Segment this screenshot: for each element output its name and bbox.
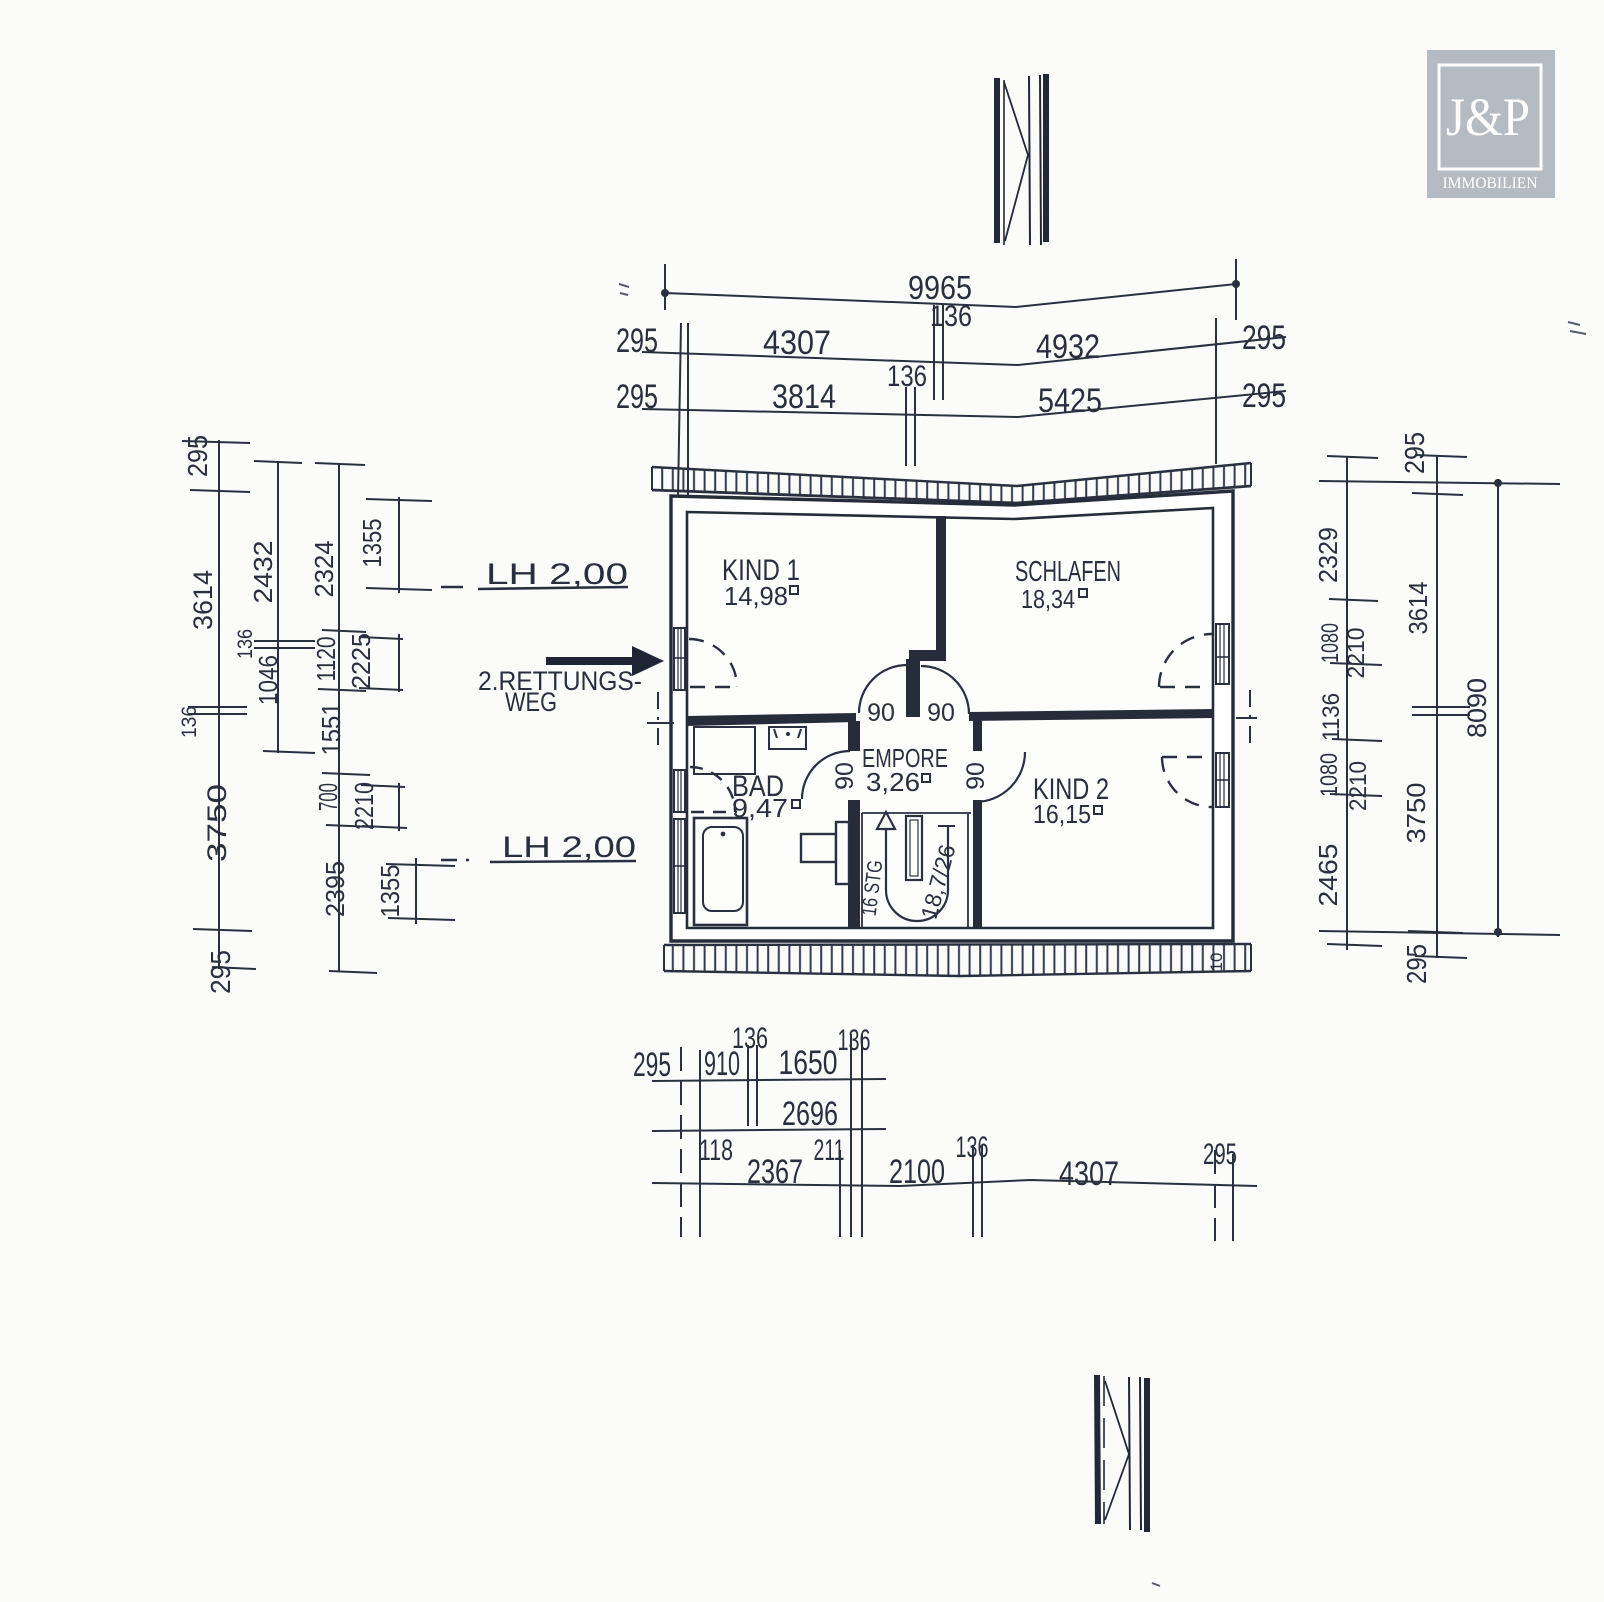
svg-text:2225: 2225 bbox=[346, 633, 376, 689]
svg-text:136: 136 bbox=[234, 629, 257, 659]
svg-text:2.RETTUNGS-: 2.RETTUNGS- bbox=[478, 666, 642, 696]
svg-text:4307: 4307 bbox=[1059, 1155, 1119, 1193]
svg-text:2100: 2100 bbox=[889, 1153, 945, 1191]
svg-text:9,47: 9,47 bbox=[732, 793, 788, 823]
svg-text:211: 211 bbox=[814, 1134, 845, 1167]
svg-text:136: 136 bbox=[887, 360, 927, 393]
svg-text:2432: 2432 bbox=[248, 541, 278, 604]
svg-text:295: 295 bbox=[1399, 432, 1430, 474]
svg-text:18,34: 18,34 bbox=[1021, 584, 1075, 614]
svg-text:1136: 1136 bbox=[1318, 693, 1345, 741]
svg-text:2367: 2367 bbox=[747, 1153, 803, 1191]
svg-text:2696: 2696 bbox=[782, 1095, 838, 1133]
svg-text:1355: 1355 bbox=[357, 519, 387, 568]
svg-text:8090: 8090 bbox=[1462, 678, 1492, 738]
svg-text:10: 10 bbox=[1207, 953, 1226, 972]
svg-text:295: 295 bbox=[205, 950, 236, 994]
svg-text:2395: 2395 bbox=[320, 861, 350, 917]
svg-text:136: 136 bbox=[956, 1131, 989, 1164]
svg-text:1650: 1650 bbox=[779, 1044, 838, 1082]
svg-text:1355: 1355 bbox=[375, 865, 405, 918]
svg-text:90: 90 bbox=[927, 699, 955, 727]
svg-text:3,26: 3,26 bbox=[866, 767, 920, 797]
svg-text:136: 136 bbox=[838, 1024, 871, 1057]
svg-text:WEG: WEG bbox=[505, 687, 557, 717]
svg-text:3750: 3750 bbox=[202, 784, 232, 862]
svg-text:2210: 2210 bbox=[1343, 628, 1370, 679]
svg-text:IMMOBILIEN: IMMOBILIEN bbox=[1443, 175, 1538, 192]
svg-text:700: 700 bbox=[313, 783, 343, 811]
svg-text:1551: 1551 bbox=[316, 703, 346, 756]
svg-text:295: 295 bbox=[1401, 944, 1432, 984]
svg-text:295: 295 bbox=[1242, 319, 1286, 357]
svg-text:1080: 1080 bbox=[1316, 753, 1343, 797]
svg-text:90: 90 bbox=[831, 762, 859, 790]
svg-text:1046: 1046 bbox=[253, 655, 283, 705]
svg-text:2465: 2465 bbox=[1313, 844, 1343, 907]
svg-text:5425: 5425 bbox=[1038, 382, 1102, 420]
svg-text:295: 295 bbox=[1203, 1138, 1237, 1171]
svg-text:295: 295 bbox=[616, 378, 658, 416]
svg-text:3750: 3750 bbox=[1401, 783, 1431, 844]
svg-text:2210: 2210 bbox=[349, 782, 379, 830]
svg-text:3614: 3614 bbox=[1403, 582, 1433, 635]
svg-text:4932: 4932 bbox=[1036, 328, 1100, 366]
svg-text:295: 295 bbox=[633, 1046, 671, 1084]
svg-text:LH 2,00: LH 2,00 bbox=[502, 831, 636, 864]
svg-text:14,98: 14,98 bbox=[724, 581, 788, 611]
svg-text:1120: 1120 bbox=[311, 637, 341, 682]
svg-text:136: 136 bbox=[930, 300, 972, 333]
svg-text:295: 295 bbox=[182, 435, 213, 477]
svg-text:136: 136 bbox=[178, 706, 201, 738]
svg-text:J&P: J&P bbox=[1446, 87, 1530, 147]
svg-text:90: 90 bbox=[962, 762, 990, 790]
svg-text:2329: 2329 bbox=[1313, 527, 1343, 583]
svg-text:295: 295 bbox=[616, 322, 658, 360]
svg-text:2210: 2210 bbox=[1345, 761, 1372, 811]
svg-text:118: 118 bbox=[699, 1134, 733, 1167]
svg-text:90: 90 bbox=[867, 699, 895, 727]
svg-text:4307: 4307 bbox=[763, 324, 831, 362]
svg-text:16,15: 16,15 bbox=[1033, 799, 1091, 829]
svg-text:1080: 1080 bbox=[1317, 623, 1344, 663]
svg-text:3614: 3614 bbox=[188, 570, 218, 630]
svg-text:295: 295 bbox=[1242, 377, 1286, 415]
svg-text:136: 136 bbox=[732, 1022, 768, 1055]
svg-text:3814: 3814 bbox=[772, 378, 836, 416]
svg-text:2324: 2324 bbox=[309, 541, 339, 598]
